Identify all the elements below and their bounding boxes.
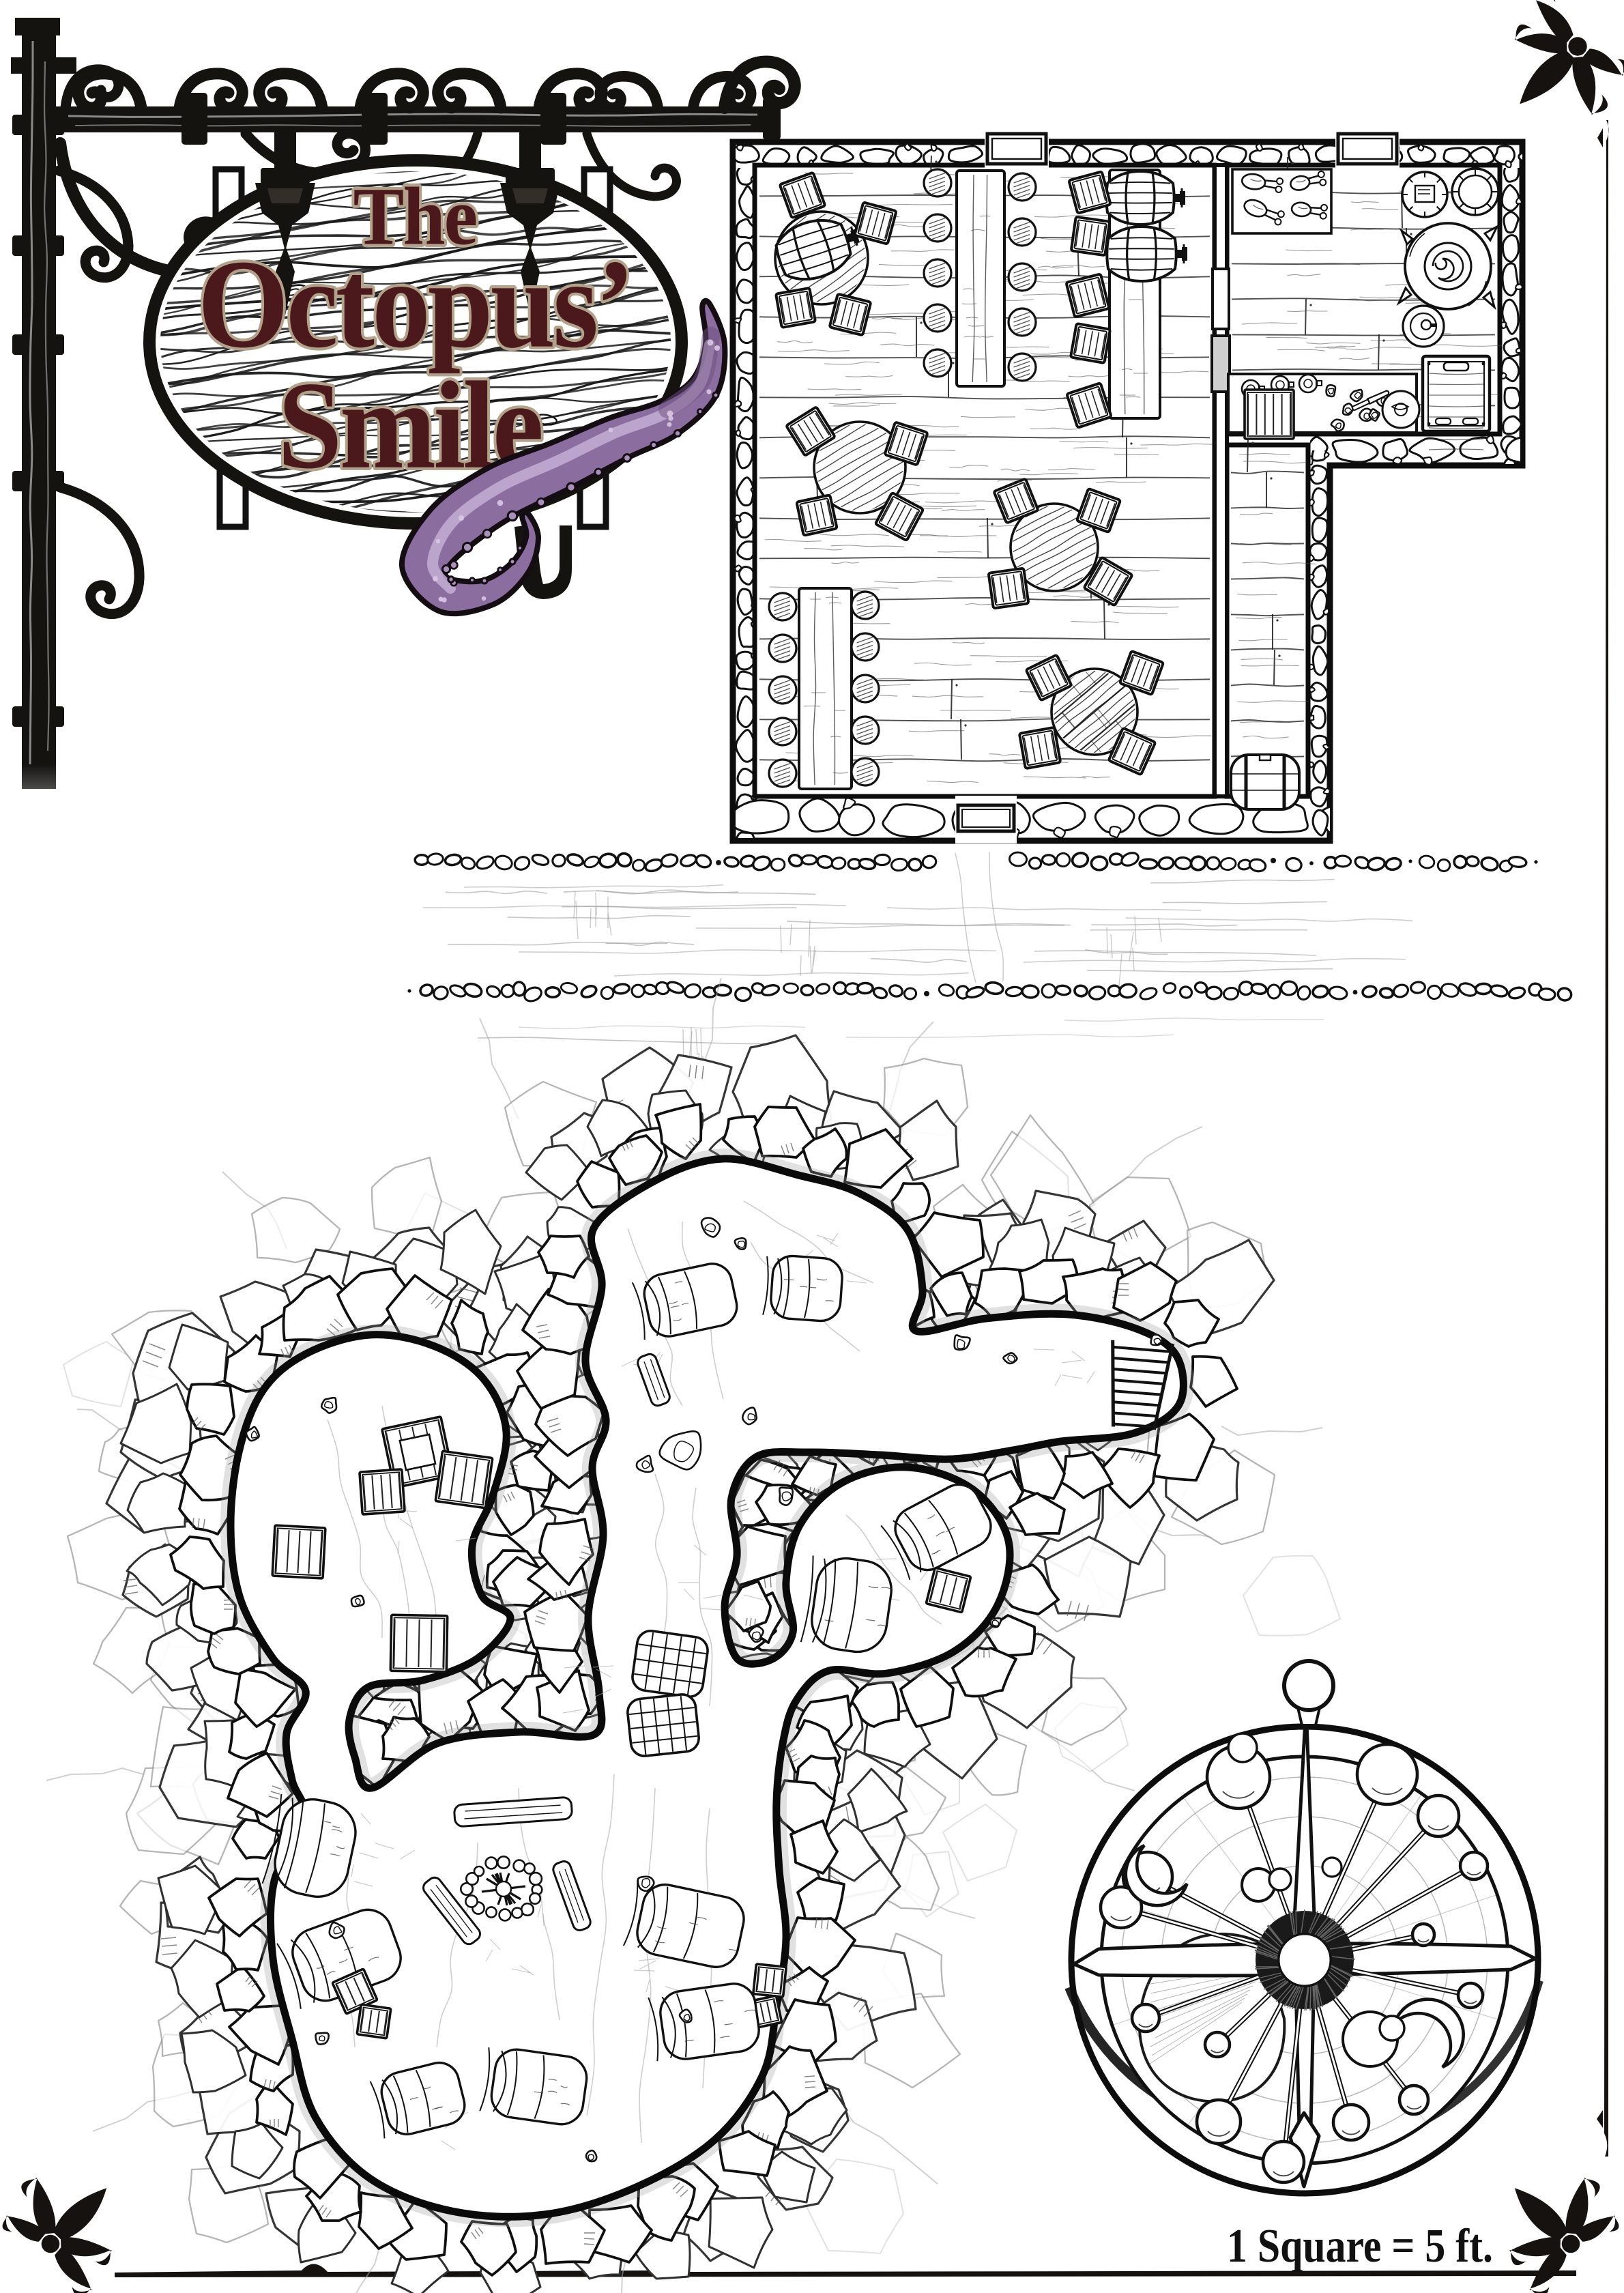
svg-text:Octopus’: Octopus’	[198, 233, 633, 375]
svg-text:1 Square = 5 ft.: 1 Square = 5 ft.	[1227, 2220, 1493, 2273]
